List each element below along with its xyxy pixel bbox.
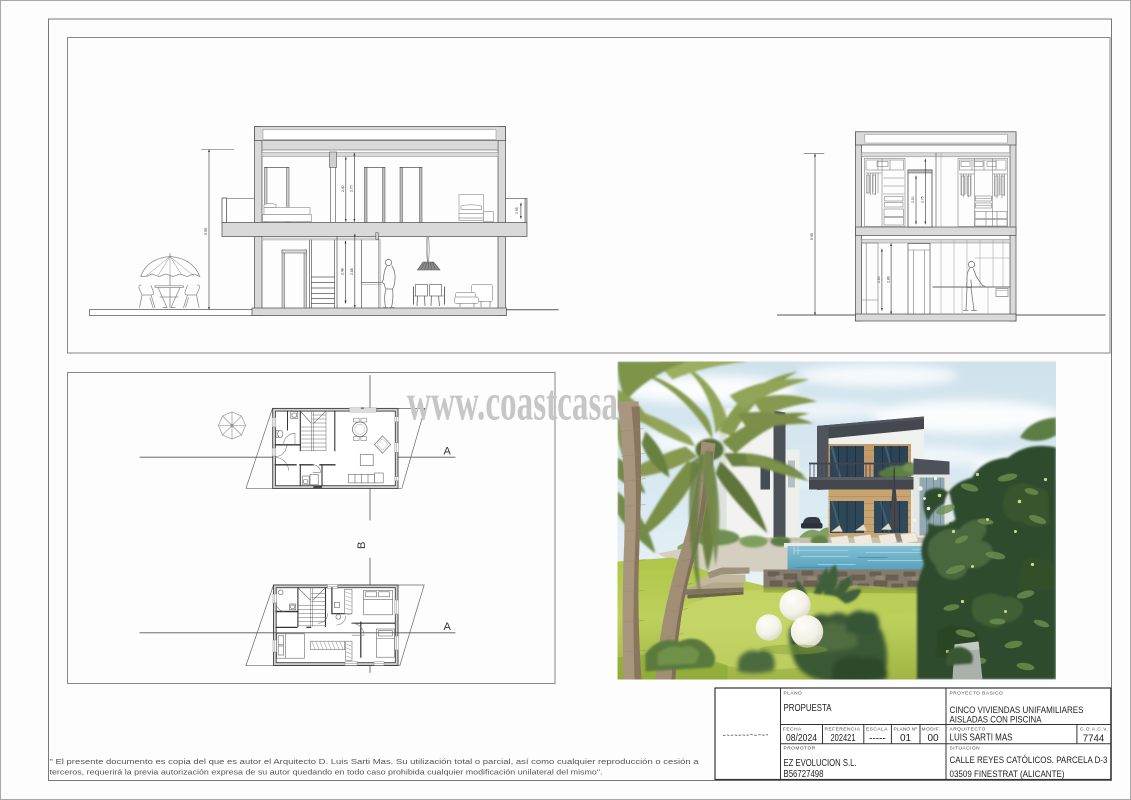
svg-text:2.70: 2.70	[350, 185, 354, 192]
svg-text:2.40: 2.40	[341, 185, 345, 192]
svg-text:PLANO Nº: PLANO Nº	[894, 727, 918, 733]
svg-text:00: 00	[927, 733, 939, 744]
svg-text:5.95: 5.95	[204, 228, 208, 235]
svg-text:AISLADAS CON PISCINA: AISLADAS CON PISCINA	[950, 715, 1043, 725]
svg-text:CALLE REYES CATÓLICOS. PARCELA: CALLE REYES CATÓLICOS. PARCELA D-3	[950, 755, 1108, 766]
svg-text:01: 01	[900, 733, 912, 744]
svg-text:7744: 7744	[1083, 734, 1105, 745]
svg-text:2.75: 2.75	[921, 196, 925, 203]
svg-text:5.95: 5.95	[810, 233, 814, 240]
svg-text:2.88: 2.88	[350, 268, 354, 275]
svg-text:PLANO: PLANO	[784, 691, 803, 697]
svg-text:-----: -----	[869, 734, 886, 745]
svg-text:www.coastcasa: www.coastcasa	[407, 375, 618, 432]
svg-text:B56727498: B56727498	[784, 769, 824, 780]
svg-text:202421: 202421	[831, 733, 856, 744]
svg-text:REFERENCIA: REFERENCIA	[825, 727, 861, 733]
svg-text:PROPUESTA: PROPUESTA	[784, 703, 832, 714]
svg-text:2.86: 2.86	[886, 276, 890, 283]
svg-text:LUIS SARTI MAS: LUIS SARTI MAS	[950, 733, 1013, 744]
svg-text:08/2024: 08/2024	[786, 733, 817, 744]
svg-text:PROMOTOR: PROMOTOR	[784, 746, 816, 752]
svg-text:ESCALA: ESCALA	[866, 727, 888, 733]
svg-text:terceros, requerirá la previa: terceros, requerirá la previa autorizaci…	[50, 768, 603, 777]
svg-text:SITUACION: SITUACION	[950, 746, 981, 752]
svg-text:A: A	[444, 621, 452, 633]
svg-text:PROYECTO BASICO: PROYECTO BASICO	[950, 691, 1004, 697]
svg-text:" El presente documento es cop: " El presente documento es copia del que…	[50, 757, 700, 766]
svg-text:2.48: 2.48	[341, 268, 345, 275]
svg-text:03509 FINESTRAT (ALICANTE): 03509 FINESTRAT (ALICANTE)	[950, 769, 1065, 780]
svg-text:MODIF.: MODIF.	[922, 727, 941, 733]
svg-text:B: B	[356, 542, 368, 549]
svg-text:2.60: 2.60	[877, 276, 881, 283]
svg-text:FECHA: FECHA	[783, 727, 802, 733]
svg-text:2.50: 2.50	[911, 196, 915, 203]
svg-text:A: A	[444, 446, 452, 458]
svg-text:C.O.A.C.V.: C.O.A.C.V.	[1080, 727, 1108, 733]
svg-text:CINCO VIVIENDAS UNIFAMILIARES: CINCO VIVIENDAS UNIFAMILIARES	[950, 705, 1084, 715]
svg-text:0.95: 0.95	[515, 207, 519, 214]
svg-text:EZ EVOLUCION S.L.: EZ EVOLUCION S.L.	[784, 758, 857, 769]
